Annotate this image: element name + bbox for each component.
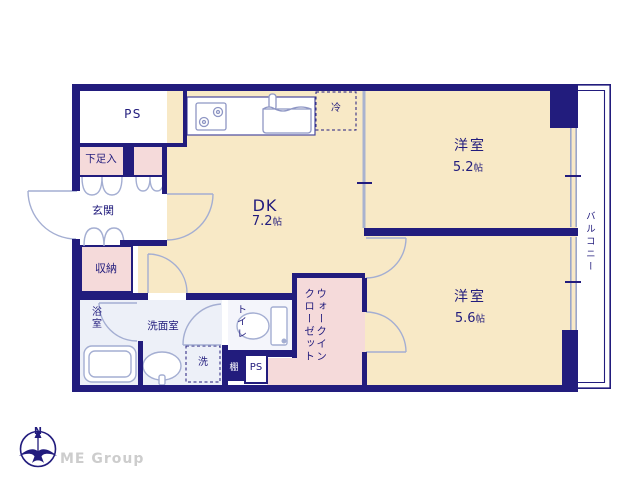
washroom-label: 洗面室 <box>147 320 179 332</box>
balcony-label: バルコニー <box>583 211 594 274</box>
bedroom2-size: 5.6帖 <box>455 312 485 327</box>
wic-label-line2: クローゼット <box>303 288 315 363</box>
floorplan-drawing <box>0 0 640 480</box>
bedroom2-size-unit: 帖 <box>476 314 486 325</box>
dk-label: DK <box>253 197 278 215</box>
wic-label: ウォークイン クローゼット <box>303 288 327 363</box>
bedroom1-label: 洋室 <box>454 138 486 154</box>
toilet-label: トイレ <box>234 304 246 340</box>
storage-label: 収納 <box>95 263 117 276</box>
dk-size: 7.2帖 <box>252 215 282 230</box>
dk-size-unit: 帖 <box>273 217 283 228</box>
bedroom2-label: 洋室 <box>454 289 486 305</box>
logo-text: ME Group <box>60 451 144 467</box>
entrance-label: 玄関 <box>92 205 114 218</box>
fridge-label: 冷 <box>331 103 341 115</box>
room-fills <box>80 91 577 385</box>
bedroom2-size-value: 5.6 <box>455 311 476 326</box>
dk-bedroom1-partition <box>363 91 366 228</box>
floorplan-canvas: PS 下足入 玄関 収納 浴室 洗面室 洗 棚 PS トイレ 冷 ウォークイン … <box>0 0 640 480</box>
wic-label-line1: ウォークイン <box>315 288 327 363</box>
washer-label: 洗 <box>198 357 208 369</box>
front-door-arc <box>28 191 77 239</box>
compass-north-label: N <box>34 426 42 437</box>
shelf-label: 棚 <box>229 363 238 373</box>
shoe-box-label: 下足入 <box>85 153 117 165</box>
bedroom1-size-value: 5.2 <box>453 160 474 175</box>
bathroom-label: 浴室 <box>89 306 101 330</box>
bathtub-icon <box>84 346 136 382</box>
bedroom1-size-unit: 帖 <box>474 163 484 174</box>
bedroom1-size: 5.2帖 <box>453 161 483 176</box>
dk-size-value: 7.2 <box>252 214 273 229</box>
ps-bottom-label: PS <box>250 362 262 374</box>
ps-top-label: PS <box>124 108 142 122</box>
